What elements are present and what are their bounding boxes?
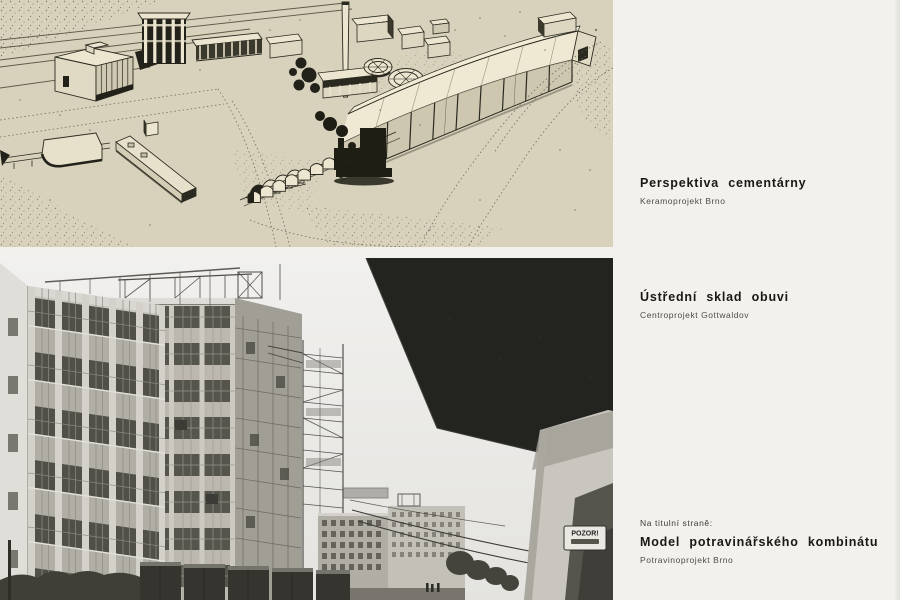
frame-building	[138, 13, 190, 64]
caption-credit: Keramoprojekt Brno	[640, 196, 890, 206]
pedestrians	[426, 583, 440, 592]
caption-title: Model potravinářského kombinátu	[640, 536, 890, 550]
caption-title-page-note: Na titulní straně: Model potravinářského…	[640, 518, 890, 565]
caption-cement-plant: Perspektiva cementárny Keramoprojekt Brn…	[640, 177, 890, 206]
shoe-warehouse-photo: POZOR!	[0, 258, 613, 600]
pole	[8, 540, 11, 600]
caption-credit: Potravinoprojekt Brno	[640, 555, 890, 565]
caption-title: Ústřední sklad obuvi	[640, 291, 890, 305]
caption-credit: Centroprojekt Gottwaldov	[640, 310, 890, 320]
facade-floors	[28, 286, 165, 600]
pozor-sign: POZOR!	[564, 526, 606, 550]
caption-title: Perspektiva cementárny	[640, 177, 890, 191]
caption-shoe-warehouse: Ústřední sklad obuvi Centroprojekt Gottw…	[640, 291, 890, 320]
caption-note: Na titulní straně:	[640, 518, 890, 528]
magazine-page: POZOR!	[0, 0, 900, 600]
cement-plant-drawing	[0, 0, 613, 247]
pozor-sign-text: POZOR!	[571, 531, 598, 538]
